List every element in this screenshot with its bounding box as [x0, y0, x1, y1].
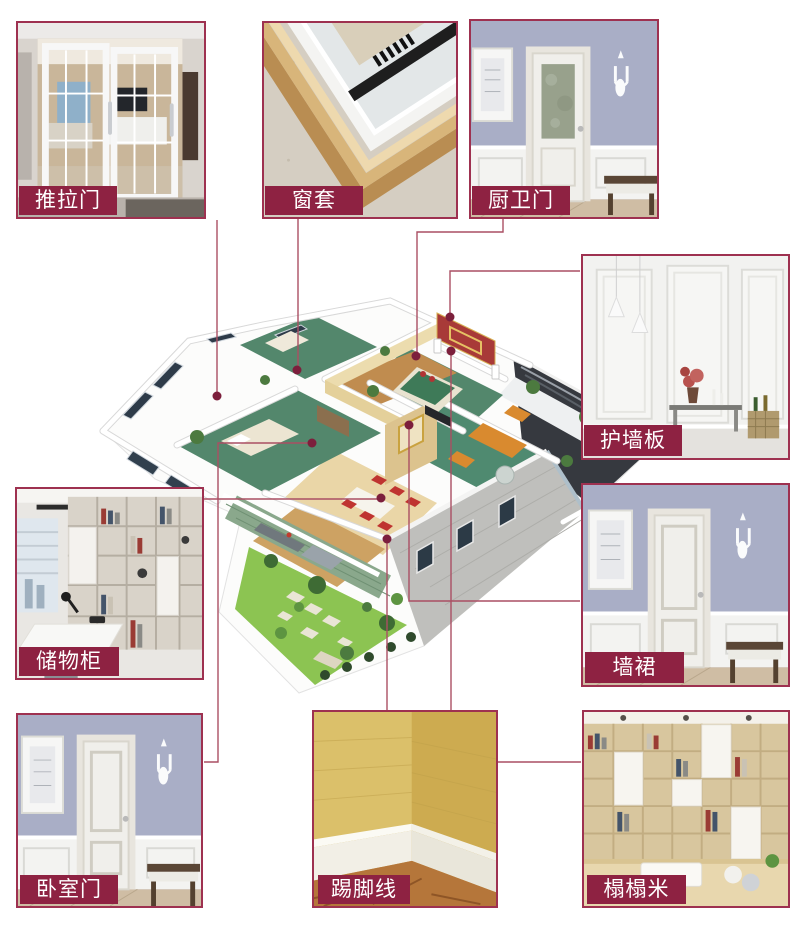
product-photo-bedroom-door[interactable]: 卧室门 — [16, 713, 203, 908]
label-kitchen-bath-door: 厨卫门 — [472, 186, 570, 215]
marker-tatami — [447, 347, 456, 356]
label-skirting-line: 踢脚线 — [318, 875, 410, 904]
connector-tatami — [451, 352, 581, 762]
poster-canvas: 推拉门 窗套 — [0, 0, 790, 948]
product-photo-skirting-line[interactable]: 踢脚线 — [312, 710, 498, 908]
marker-storage-cabinet — [377, 494, 386, 503]
product-photo-wainscot[interactable]: 墙裙 — [581, 483, 790, 687]
marker-window-casing — [293, 366, 302, 375]
connector-bedroom-door — [204, 443, 312, 762]
connector-wall-panel — [450, 271, 580, 316]
marker-wainscot — [405, 421, 414, 430]
label-window-casing: 窗套 — [265, 186, 363, 215]
label-bedroom-door: 卧室门 — [20, 875, 118, 904]
product-photo-window-casing[interactable]: 窗套 — [262, 21, 458, 219]
product-photo-sliding-door[interactable]: 推拉门 — [16, 21, 206, 219]
product-photo-wall-panel[interactable]: 护墙板 — [581, 254, 790, 460]
marker-kitchen-bath-door — [412, 352, 421, 361]
marker-bedroom-door — [308, 439, 317, 448]
marker-sliding-door — [213, 392, 222, 401]
connector-wainscot — [409, 426, 580, 601]
connector-kitchen-bath-door — [417, 219, 503, 355]
product-photo-kitchen-bath-door[interactable]: 厨卫门 — [469, 19, 659, 219]
label-storage-cabinet: 储物柜 — [19, 647, 119, 676]
label-wainscot: 墙裙 — [585, 652, 684, 683]
label-tatami: 榻榻米 — [587, 875, 686, 904]
label-sliding-door: 推拉门 — [19, 186, 117, 215]
marker-skirting-line — [383, 535, 392, 544]
marker-wall-panel — [446, 313, 455, 322]
label-wall-panel: 护墙板 — [584, 425, 682, 456]
product-photo-storage-cabinet[interactable]: 储物柜 — [15, 487, 204, 680]
product-photo-tatami[interactable]: 榻榻米 — [582, 710, 790, 908]
